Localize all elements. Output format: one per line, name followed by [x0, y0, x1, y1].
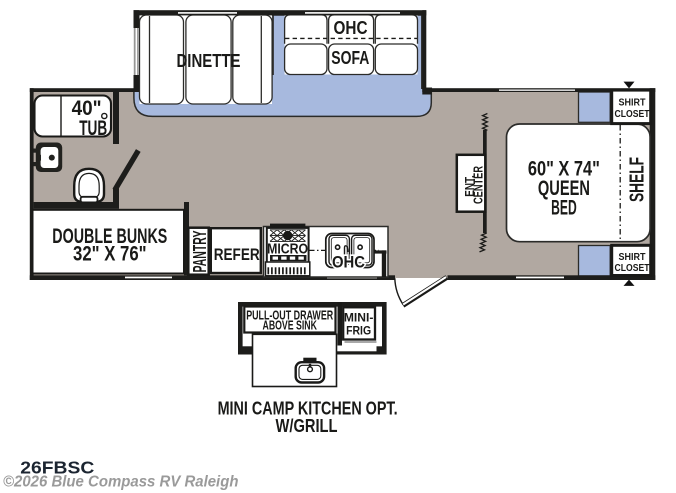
svg-text:OHC: OHC	[332, 254, 365, 272]
svg-text:CLOSET: CLOSET	[615, 262, 650, 274]
svg-text:SHELF: SHELF	[627, 157, 649, 202]
svg-text:CENTER: CENTER	[470, 166, 485, 204]
svg-text:W/GRILL: W/GRILL	[276, 416, 338, 436]
svg-text:CLOSET: CLOSET	[615, 108, 650, 120]
svg-text:REFER: REFER	[214, 245, 260, 264]
svg-text:MINI-: MINI-	[344, 310, 374, 324]
svg-text:FRIG: FRIG	[346, 323, 371, 337]
svg-text:PANTRY: PANTRY	[190, 231, 210, 273]
svg-text:32" X 76": 32" X 76"	[73, 242, 147, 265]
svg-text:TUB: TUB	[79, 117, 107, 140]
svg-text:©2026 Blue Compass RV Raleigh: ©2026 Blue Compass RV Raleigh	[3, 474, 239, 491]
svg-text:SHIRT: SHIRT	[619, 251, 647, 263]
svg-text:DINETTE: DINETTE	[177, 51, 241, 71]
svg-text:SOFA: SOFA	[331, 47, 369, 68]
svg-text:OHC: OHC	[334, 17, 368, 38]
svg-text:ABOVE SINK: ABOVE SINK	[263, 317, 318, 332]
svg-text:SHIRT: SHIRT	[619, 97, 647, 109]
svg-text:BED: BED	[551, 196, 577, 219]
